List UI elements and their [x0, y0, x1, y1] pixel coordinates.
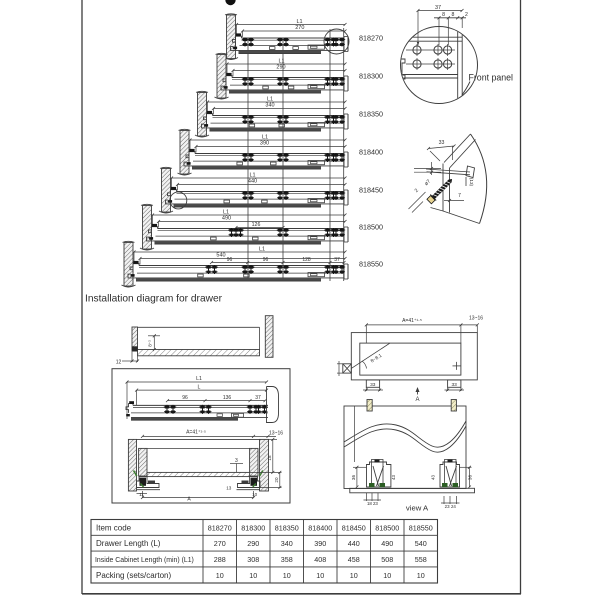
svg-text:270: 270: [295, 25, 304, 31]
svg-text:18: 18: [367, 501, 372, 506]
svg-text:13~16: 13~16: [269, 430, 283, 436]
svg-text:818550: 818550: [409, 523, 433, 532]
svg-text:818300: 818300: [359, 72, 383, 81]
svg-text:A=41⁺¹·⁵: A=41⁺¹·⁵: [186, 430, 206, 436]
svg-text:36: 36: [351, 475, 356, 481]
svg-text:126: 126: [252, 222, 261, 228]
svg-text:10: 10: [283, 571, 291, 580]
svg-text:33: 33: [370, 382, 376, 388]
svg-text:L1: L1: [296, 19, 302, 25]
svg-text:290: 290: [276, 65, 285, 71]
svg-text:818350: 818350: [275, 523, 299, 532]
svg-text:96: 96: [227, 257, 233, 263]
svg-text:358: 358: [281, 555, 293, 564]
svg-text:136: 136: [223, 395, 232, 401]
svg-text:view A: view A: [406, 504, 429, 513]
svg-text:23: 23: [445, 504, 450, 509]
svg-text:10: 10: [383, 571, 391, 580]
svg-text:818500: 818500: [375, 523, 399, 532]
svg-text:818450: 818450: [359, 186, 383, 195]
svg-text:818300: 818300: [241, 523, 265, 532]
svg-text:Item code: Item code: [96, 523, 132, 532]
svg-text:288: 288: [214, 555, 226, 564]
svg-text:818550: 818550: [359, 260, 383, 269]
svg-text:13: 13: [226, 485, 232, 490]
svg-text:L1: L1: [262, 134, 268, 140]
svg-text:12: 12: [116, 359, 122, 365]
svg-text:Inside Cabinet Length (min) (L: Inside Cabinet Length (min) (L1): [95, 557, 194, 564]
svg-text:408: 408: [314, 555, 326, 564]
svg-text:L1: L1: [278, 58, 284, 64]
svg-text:308: 308: [247, 555, 259, 564]
svg-text:L1: L1: [259, 246, 265, 252]
svg-text:3: 3: [235, 458, 238, 464]
svg-text:340: 340: [265, 103, 274, 109]
svg-text:37: 37: [435, 5, 441, 11]
svg-text:13~16: 13~16: [469, 316, 483, 322]
svg-text:L1: L1: [249, 172, 255, 178]
svg-text:10: 10: [249, 571, 257, 580]
svg-text:96: 96: [263, 257, 269, 263]
svg-text:33: 33: [439, 140, 445, 146]
svg-text:440: 440: [348, 539, 360, 548]
svg-text:23: 23: [373, 501, 378, 506]
svg-text:558: 558: [415, 555, 427, 564]
svg-text:818450: 818450: [342, 523, 366, 532]
svg-text:290: 290: [247, 539, 259, 548]
svg-text:818500: 818500: [359, 223, 383, 232]
svg-text:10: 10: [350, 571, 358, 580]
svg-text:Front panel: Front panel: [469, 73, 514, 83]
svg-text:L1: L1: [196, 376, 202, 382]
svg-text:37: 37: [255, 395, 261, 401]
svg-text:A=41⁺¹·⁵: A=41⁺¹·⁵: [402, 318, 422, 324]
svg-text:2: 2: [465, 12, 468, 18]
svg-text:818400: 818400: [359, 148, 383, 157]
svg-text:L1: L1: [267, 96, 273, 102]
svg-text:8: 8: [442, 12, 445, 18]
svg-text:270: 270: [214, 539, 226, 548]
svg-text:8: 8: [452, 12, 455, 18]
svg-text:340: 340: [281, 539, 293, 548]
svg-text:18: 18: [267, 455, 272, 461]
svg-text:818400: 818400: [308, 523, 332, 532]
svg-text:8⁺¹: 8⁺¹: [148, 340, 153, 347]
svg-text:490: 490: [222, 216, 231, 222]
svg-text:440: 440: [248, 179, 257, 185]
svg-text:(13): (13): [469, 178, 474, 187]
svg-text:390: 390: [314, 539, 326, 548]
svg-text:490: 490: [381, 539, 393, 548]
svg-text:508: 508: [381, 555, 393, 564]
svg-text:128: 128: [302, 257, 311, 263]
svg-text:24: 24: [451, 504, 456, 509]
svg-text:818270: 818270: [208, 523, 232, 532]
svg-text:43: 43: [391, 475, 396, 480]
svg-text:33: 33: [452, 382, 458, 388]
svg-text:7: 7: [458, 193, 461, 199]
svg-text:36: 36: [467, 475, 472, 481]
svg-text:540: 540: [216, 253, 225, 259]
svg-text:Drawer Length (L): Drawer Length (L): [96, 539, 161, 548]
svg-text:Installation diagram for drawe: Installation diagram for drawer: [85, 294, 223, 305]
svg-text:43: 43: [431, 475, 436, 480]
svg-text:458: 458: [348, 555, 360, 564]
svg-text:Packing (sets/carton): Packing (sets/carton): [96, 571, 171, 580]
svg-text:10: 10: [417, 571, 425, 580]
svg-text:37: 37: [334, 257, 340, 263]
svg-text:540: 540: [415, 539, 427, 548]
svg-text:L1: L1: [223, 209, 229, 215]
svg-text:10: 10: [316, 571, 324, 580]
svg-text:818350: 818350: [359, 110, 383, 119]
svg-text:390: 390: [260, 141, 269, 147]
svg-text:10: 10: [216, 571, 224, 580]
svg-text:20: 20: [274, 477, 279, 483]
svg-text:A: A: [415, 397, 419, 403]
svg-text:96: 96: [182, 395, 188, 401]
svg-text:L: L: [198, 384, 201, 390]
svg-text:818270: 818270: [359, 34, 383, 43]
